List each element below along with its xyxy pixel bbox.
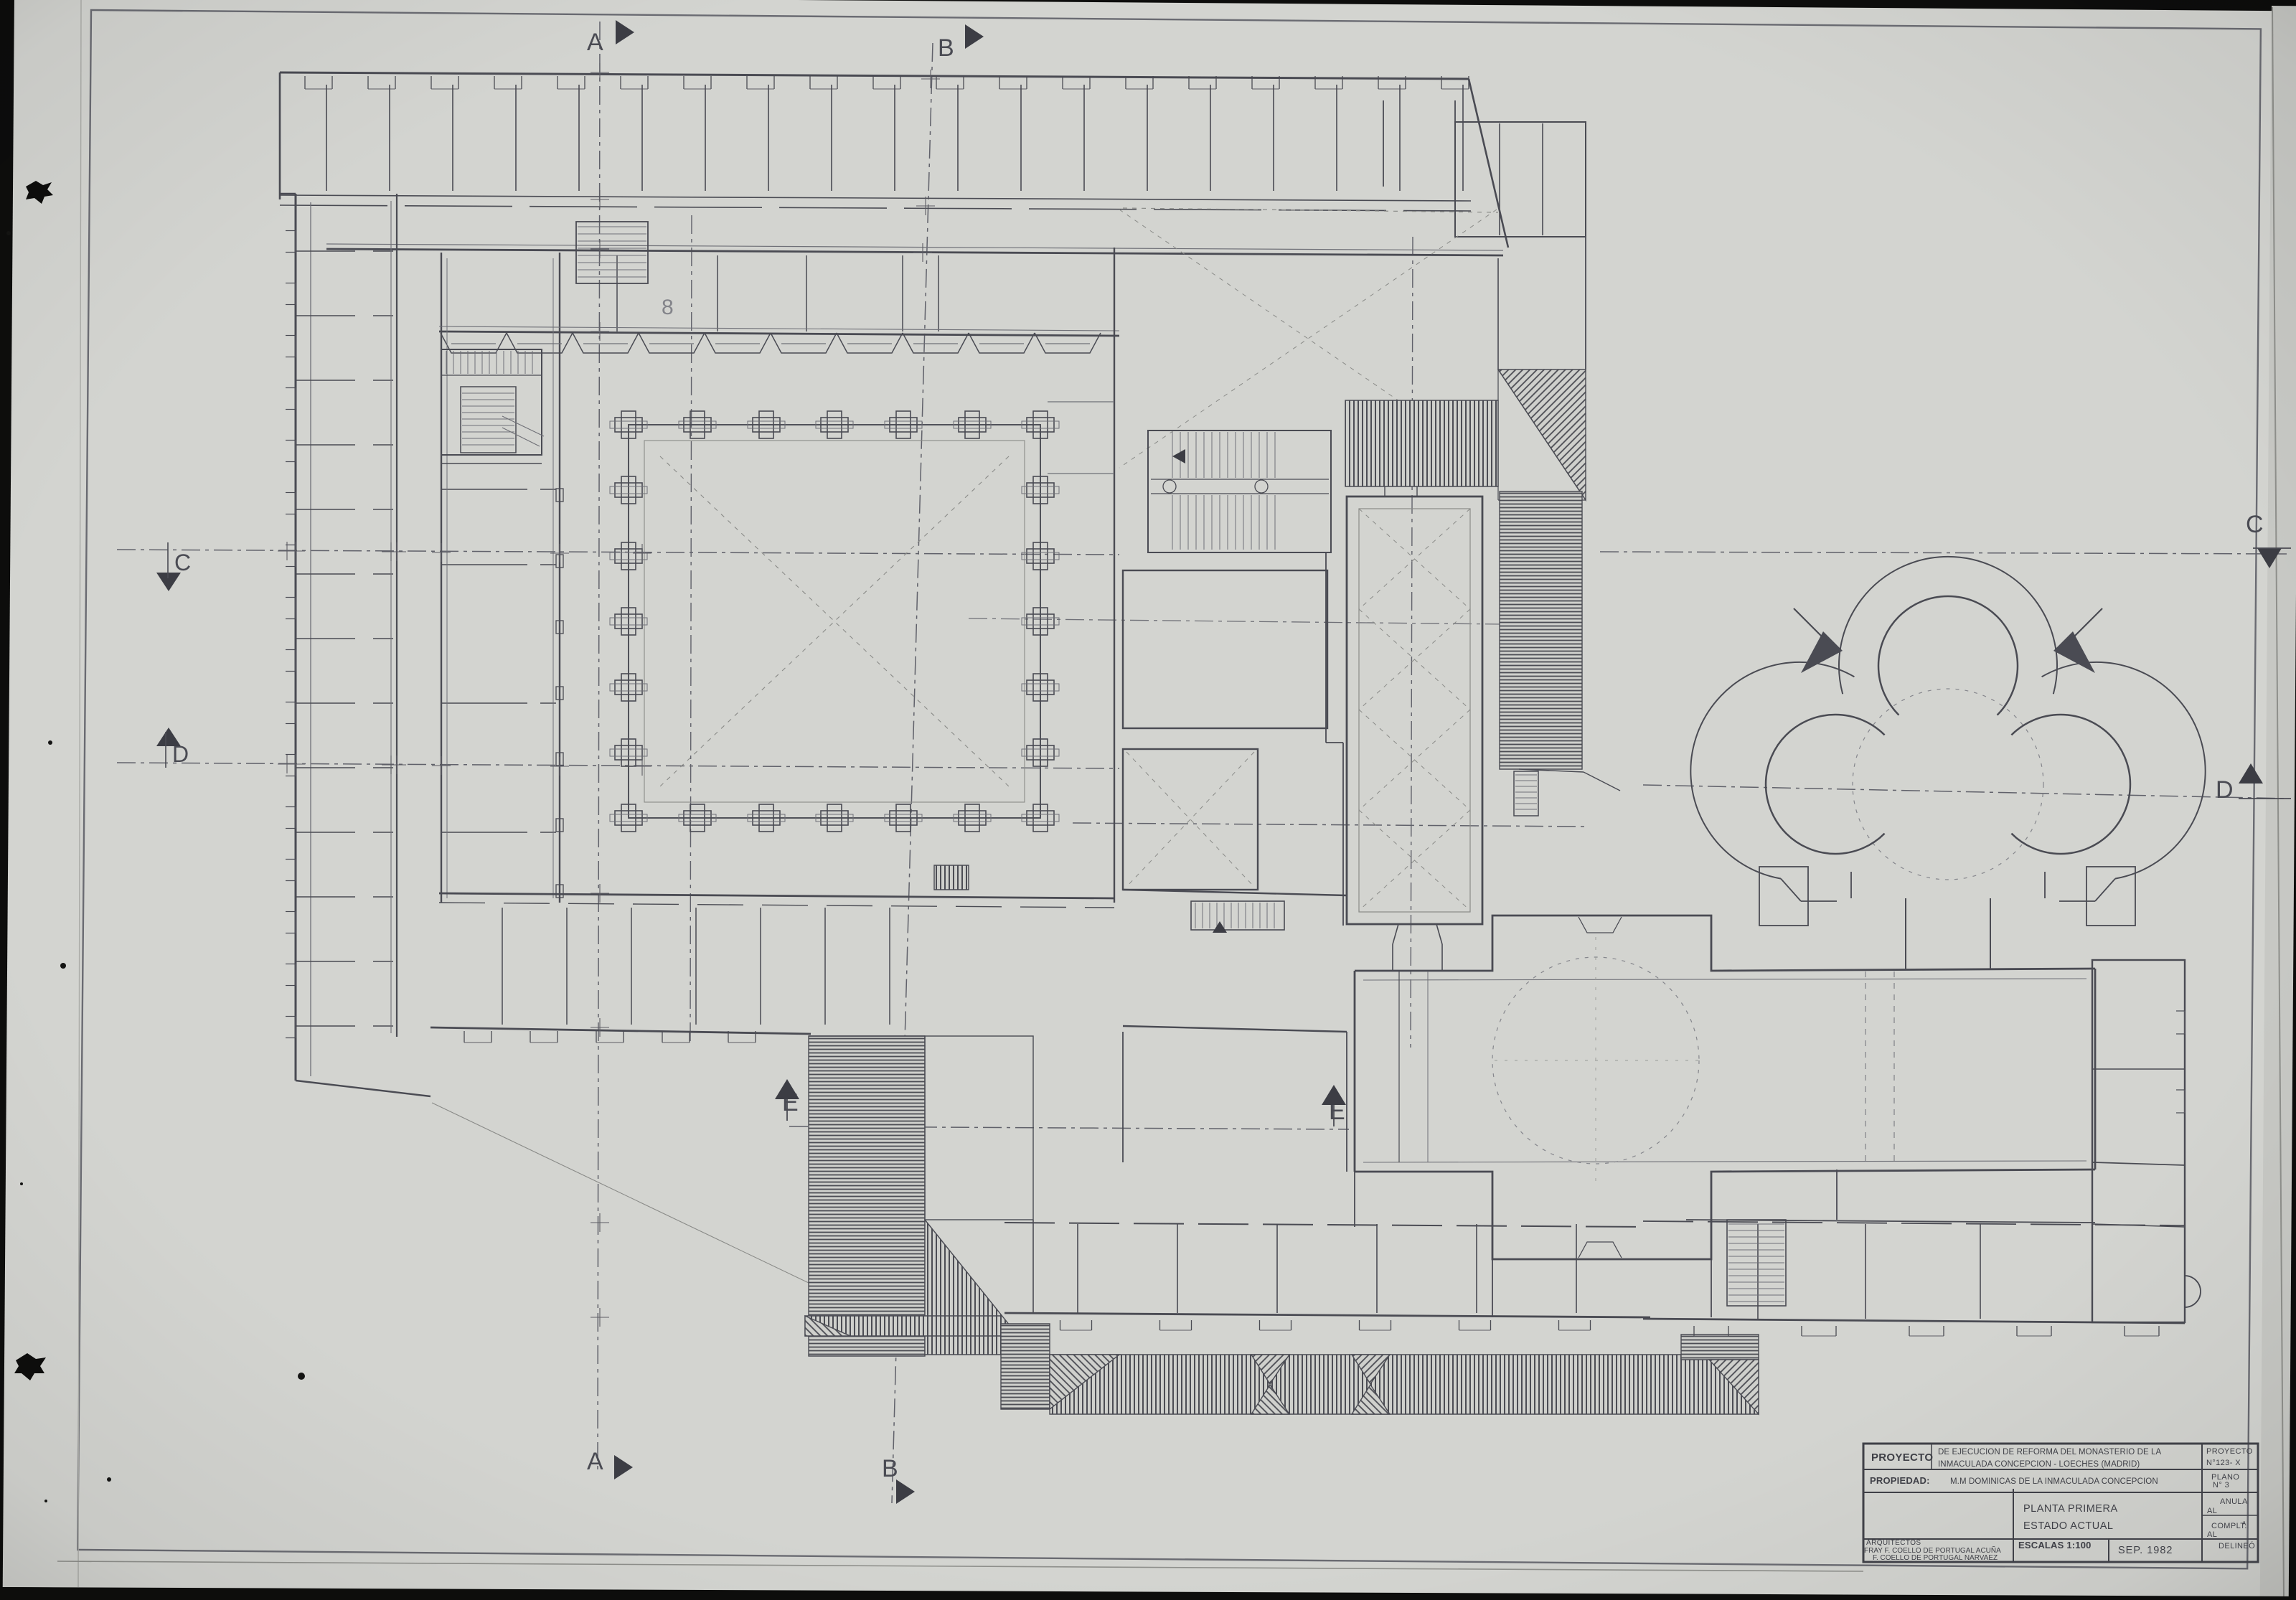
svg-text:ESTADO ACTUAL: ESTADO ACTUAL — [2023, 1520, 2113, 1532]
svg-text:F. COELLO DE PORTUGAL NARVAEZ: F. COELLO DE PORTUGAL NARVAEZ — [1873, 1554, 1998, 1562]
svg-text:A: A — [2242, 1520, 2246, 1527]
svg-text:AL: AL — [2207, 1530, 2217, 1539]
svg-text:SEP. 1982: SEP. 1982 — [2118, 1545, 2173, 1556]
svg-text:M.M DOMINICAS DE LA INMACULADA: M.M DOMINICAS DE LA INMACULADA CONCEPCIO… — [1950, 1477, 2158, 1486]
svg-text:PROPIEDAD:: PROPIEDAD: — [1870, 1475, 1930, 1486]
svg-text:PROYECTO: PROYECTO — [1871, 1451, 1933, 1464]
svg-text:ANULA: ANULA — [2220, 1497, 2248, 1506]
svg-text:INMACULADA CONCEPCION - LOECHE: INMACULADA CONCEPCION - LOECHES (MADRID) — [1938, 1460, 2140, 1469]
svg-text:N°123- X: N°123- X — [2206, 1459, 2241, 1467]
svg-text:DELINEÓ: DELINEÓ — [2219, 1541, 2255, 1550]
svg-text:ARQUITECTOS: ARQUITECTOS — [1866, 1539, 1921, 1547]
svg-text:N° 3: N° 3 — [2213, 1481, 2229, 1490]
svg-text:AL: AL — [2207, 1507, 2217, 1515]
svg-text:PLANTA PRIMERA: PLANTA PRIMERA — [2023, 1503, 2118, 1515]
svg-text:PROYECTO: PROYECTO — [2206, 1447, 2253, 1456]
svg-text:ESCALAS 1:100: ESCALAS 1:100 — [2018, 1540, 2092, 1550]
svg-text:DE EJECUCION DE REFORMA DEL MO: DE EJECUCION DE REFORMA DEL MONASTERIO D… — [1938, 1448, 2162, 1457]
